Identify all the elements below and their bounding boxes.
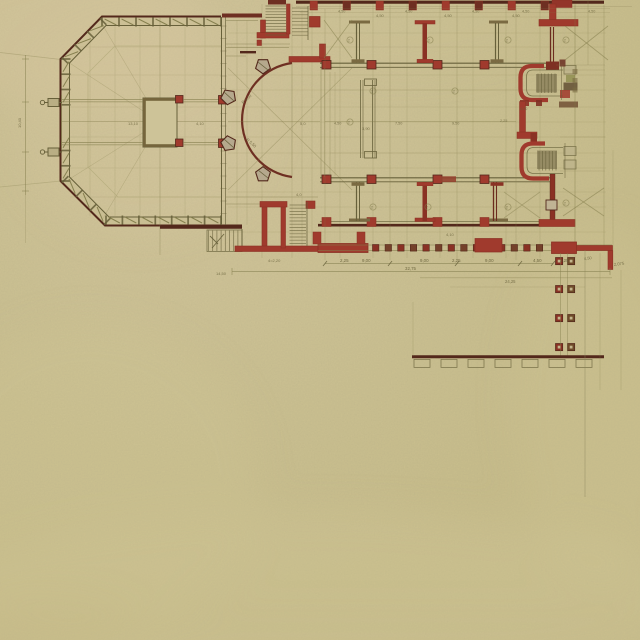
svg-text:2,25: 2,25 bbox=[500, 119, 507, 123]
svg-text:4,50: 4,50 bbox=[584, 255, 593, 261]
svg-text:4,50: 4,50 bbox=[512, 13, 521, 18]
svg-text:2,25: 2,25 bbox=[340, 258, 349, 263]
svg-text:2,25: 2,25 bbox=[452, 258, 461, 263]
svg-text:9,50: 9,50 bbox=[452, 122, 459, 126]
svg-text:4,50: 4,50 bbox=[338, 10, 345, 14]
svg-text:4,0: 4,0 bbox=[296, 192, 302, 197]
svg-text:4=2,20: 4=2,20 bbox=[268, 258, 281, 263]
svg-text:4,50: 4,50 bbox=[405, 10, 412, 14]
svg-text:9,00: 9,00 bbox=[362, 258, 371, 263]
svg-text:7,50: 7,50 bbox=[395, 122, 402, 126]
svg-text:13,10: 13,10 bbox=[128, 121, 139, 126]
svg-text:4,50: 4,50 bbox=[588, 10, 595, 14]
svg-text:32,75: 32,75 bbox=[405, 266, 417, 271]
svg-text:9,00: 9,00 bbox=[420, 258, 429, 263]
svg-text:4,10: 4,10 bbox=[446, 232, 455, 237]
svg-text:4,50: 4,50 bbox=[376, 13, 385, 18]
svg-text:4,50: 4,50 bbox=[522, 10, 529, 14]
svg-text:4,50: 4,50 bbox=[533, 258, 542, 263]
svg-text:9,00: 9,00 bbox=[485, 258, 494, 263]
svg-text:24,25: 24,25 bbox=[505, 279, 516, 284]
svg-text:14,50: 14,50 bbox=[216, 271, 227, 276]
svg-text:10,40: 10,40 bbox=[17, 117, 22, 128]
svg-text:4,50: 4,50 bbox=[444, 13, 453, 18]
svg-text:2,25: 2,25 bbox=[560, 258, 569, 263]
svg-text:5,0: 5,0 bbox=[300, 121, 306, 126]
svg-text:4,10: 4,10 bbox=[196, 121, 205, 126]
svg-text:4,50: 4,50 bbox=[472, 10, 479, 14]
svg-text:3,90: 3,90 bbox=[362, 126, 371, 131]
svg-text:4,50: 4,50 bbox=[520, 107, 527, 111]
